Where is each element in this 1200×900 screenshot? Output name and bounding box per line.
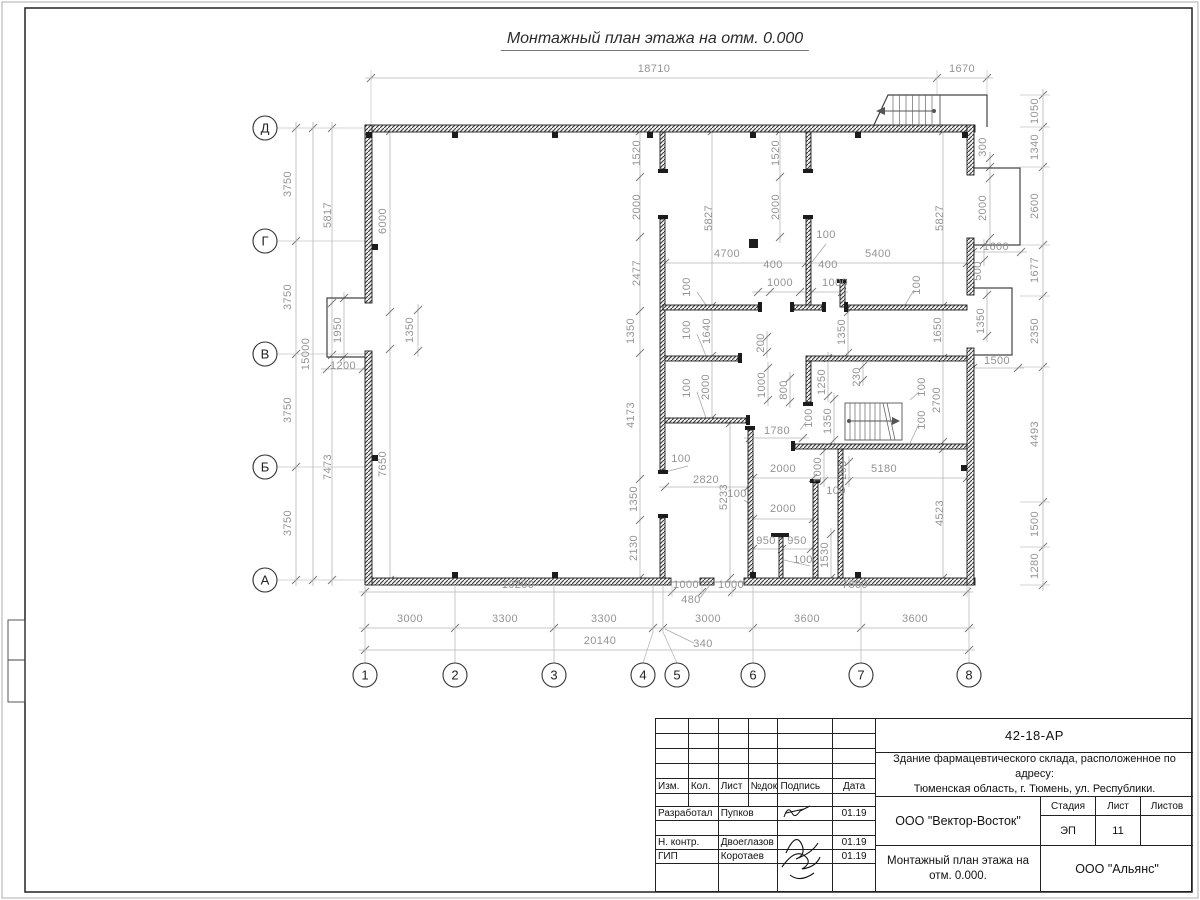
stage-value: ЭП: [1041, 816, 1096, 846]
dimension-label: 3600: [794, 613, 820, 625]
axis-leader: [643, 585, 653, 663]
leader-line: [697, 292, 706, 305]
axis-label: А: [261, 573, 270, 588]
axis-label: 4: [639, 668, 646, 683]
tb-empty-cell: [749, 749, 779, 763]
dimension-label: 2700: [931, 387, 943, 413]
sheet-number-label: Лист: [1096, 797, 1141, 816]
dimension-label: 1000: [756, 372, 768, 398]
stair-start-dot: [932, 109, 936, 113]
dimension-label: 3300: [492, 613, 518, 625]
dimension-label: 400: [818, 259, 838, 271]
object-name: Здание фармацевтического склада, располо…: [876, 753, 1193, 797]
plan-title: Монтажный план этажа на отм. 0.000: [501, 30, 809, 51]
dimension-label: 100: [681, 320, 693, 340]
dimension-label: 400: [763, 259, 783, 271]
dimension-label: 1280: [1029, 553, 1041, 579]
pilaster: [452, 132, 458, 138]
tb-header-podpis: Подпись: [778, 779, 833, 793]
dimension-label: 4700: [714, 248, 740, 260]
pilaster: [552, 132, 558, 138]
dimension-label: 1000: [718, 579, 744, 591]
dimension-label: 300: [977, 137, 989, 157]
dimension-label: 7473: [322, 454, 334, 480]
drawing-sheet: 1871016703750375037503750150005817747319…: [0, 0, 1200, 900]
stage-label: Стадия: [1041, 797, 1096, 816]
wall: [806, 132, 811, 169]
dimension-label: 2000: [770, 463, 796, 475]
dimension-label: 230: [851, 367, 863, 387]
wall-end-cap: [738, 353, 742, 363]
document-code: 42-18-АР: [876, 719, 1193, 753]
stair-arrow-icon: [876, 107, 885, 115]
dimension-label: 1340: [1029, 134, 1041, 160]
dimension-label: 1350: [628, 486, 640, 512]
dimension-label: 100: [671, 453, 691, 465]
dimension-label: 1250: [816, 369, 828, 395]
dimension-label: 3600: [902, 613, 928, 625]
tb-empty-cell: [778, 764, 833, 778]
stair-start-dot: [847, 419, 851, 423]
object-name-line1: Здание фармацевтического склада, располо…: [876, 752, 1193, 782]
leader-line: [665, 629, 694, 643]
wall: [365, 125, 975, 132]
tb-empty-cell: [833, 764, 875, 778]
dimension-label: 100: [816, 229, 836, 241]
dimension-label: 100: [727, 488, 747, 500]
wall-end-cap: [658, 514, 668, 518]
dimension-label: 2130: [628, 535, 640, 561]
dimension-label: 20140: [584, 635, 617, 647]
dimension-label: 340: [693, 638, 713, 650]
dimension-label: 2000: [977, 195, 989, 221]
tb-empty-cell: [778, 734, 833, 748]
dimension-label: 3000: [397, 613, 423, 625]
dimension-label: 1780: [764, 425, 790, 437]
dimension-label: 10200: [502, 579, 535, 591]
axis-label: 8: [965, 668, 972, 683]
dimension-label: 5827: [703, 205, 715, 231]
tb-empty-cell: [656, 734, 689, 748]
tb-empty-cell: [719, 719, 749, 733]
wall-end-cap: [803, 402, 813, 406]
dimension-label: 4493: [1029, 421, 1041, 447]
dimension-label: 1350: [822, 408, 834, 434]
pilaster: [372, 244, 378, 250]
stair-arrow-icon: [892, 417, 900, 425]
sheet-number-value: 11: [1096, 816, 1141, 846]
dimension-label: 100: [681, 378, 693, 398]
dimension-label: 1050: [1029, 98, 1041, 124]
tb-empty-cell: [833, 734, 875, 748]
dimension-label: 100: [826, 485, 846, 497]
dimension-label: 3300: [591, 613, 617, 625]
tb-empty-cell: [719, 821, 779, 835]
tb-empty-cell: [656, 764, 689, 778]
tb-empty-cell: [656, 719, 689, 733]
dimension-label: 7650: [377, 451, 389, 477]
tb-header-list: Лист: [719, 779, 749, 793]
tb-empty-cell: [749, 734, 779, 748]
signature-developer-icon: [784, 806, 810, 817]
axis-label: 3: [550, 668, 557, 683]
dimension-label: 100: [681, 277, 693, 297]
pilaster: [366, 132, 372, 138]
dimension-label: 4173: [625, 402, 637, 428]
dimension-label: 5827: [934, 205, 946, 231]
dimension-label: 200: [837, 460, 849, 480]
dimension-label: 3750: [282, 397, 294, 423]
drawing-name-line2: отм. 0.000.: [929, 869, 987, 884]
wall-end-cap: [803, 215, 813, 219]
tb-empty-cell: [749, 794, 779, 806]
pilaster: [750, 572, 756, 578]
wall: [795, 444, 967, 449]
tb-empty-cell: [656, 749, 689, 763]
tb-empty-cell: [778, 749, 833, 763]
object-name-line2: Тюменская область, г. Тюмень, ул. Респуб…: [914, 782, 1156, 797]
tb-empty-cell: [689, 794, 719, 806]
edge-stamp-box: [8, 620, 25, 660]
wall-end-cap: [658, 169, 668, 173]
dimension-label: 100: [916, 377, 928, 397]
edge-stamp-box: [8, 660, 25, 702]
tb-empty-cell: [656, 821, 719, 835]
pilaster: [452, 572, 458, 578]
dimension-label: 2000: [700, 374, 712, 400]
dimension-label: 2000: [631, 194, 643, 220]
dimension-label: 4523: [934, 500, 946, 526]
pilaster: [961, 465, 967, 471]
tb-empty-cell: [833, 719, 875, 733]
column: [749, 239, 758, 248]
dimension-label: 1650: [932, 317, 944, 343]
wall: [665, 418, 746, 423]
wall: [660, 219, 665, 470]
dimension-label: 100: [803, 408, 815, 428]
dimension-label: 1600: [983, 241, 1009, 253]
tb-empty-cell: [749, 719, 779, 733]
tb-empty-cell: [719, 764, 749, 778]
dimension-label: 6000: [377, 208, 389, 234]
wall: [665, 356, 738, 361]
dimension-label: 2600: [1029, 193, 1041, 219]
dimension-label: 15000: [300, 338, 312, 371]
wall: [660, 518, 665, 578]
dimension-label: 1000: [767, 277, 793, 289]
dimension-label: 2350: [1029, 318, 1041, 344]
tb-role-gip: ГИП: [656, 850, 719, 863]
wall-end-cap: [822, 302, 826, 312]
tb-header-izm: Изм.: [656, 779, 689, 793]
tb-header-kol: Кол.: [689, 779, 719, 793]
wall: [748, 430, 753, 578]
leader-line: [665, 466, 688, 472]
tb-empty-cell: [689, 719, 719, 733]
wall-end-cap: [758, 302, 762, 312]
developer-org: ООО "Вектор-Восток": [876, 797, 1041, 846]
dimension-label: 2000: [770, 503, 796, 515]
axis-label: 5: [673, 668, 680, 683]
dimension-label: 1950: [332, 317, 344, 343]
pilaster: [855, 572, 861, 578]
dimension-label: 5180: [871, 463, 897, 475]
dimension-label: 7800: [842, 579, 868, 591]
wall-end-cap: [844, 302, 848, 312]
pilaster: [552, 572, 558, 578]
axis-label: 6: [749, 668, 756, 683]
tb-empty-cell: [719, 734, 749, 748]
dimension-label: 1000: [673, 579, 699, 591]
axis-label: 2: [451, 668, 458, 683]
dimension-label: 3750: [282, 171, 294, 197]
dimension-label: 100: [793, 554, 813, 566]
dimension-label: 2820: [693, 474, 719, 486]
sheets-total-label: Листов: [1141, 797, 1193, 816]
wall: [365, 125, 372, 303]
axis-label: Г: [261, 234, 268, 249]
stair-break-line: [883, 403, 891, 440]
dimension-label: 5400: [865, 248, 891, 260]
customer-org: ООО "Альянс": [1041, 846, 1193, 891]
tb-empty-cell: [656, 794, 689, 806]
dimension-label: 1530: [819, 542, 831, 568]
pilaster: [962, 132, 968, 138]
wall-end-cap: [790, 302, 794, 312]
dimension-label: 1520: [631, 140, 643, 166]
tb-header-ndok: №док.: [749, 779, 779, 793]
dimension-label: 3750: [282, 284, 294, 310]
sheets-total-value: [1141, 816, 1193, 846]
dimension-label: 3750: [282, 510, 294, 536]
dimension-label: 1000: [812, 457, 824, 483]
wall-end-cap: [745, 426, 755, 430]
dimension-label: 1350: [836, 319, 848, 345]
tb-role-developer: Разработал: [656, 807, 719, 820]
dimension-label: 800: [778, 380, 790, 400]
wall-end-cap: [658, 215, 668, 219]
signatures-overlay: [776, 801, 896, 891]
dimension-label: 950: [756, 535, 776, 547]
tb-empty-cell: [833, 749, 875, 763]
axis-label: Д: [261, 121, 270, 136]
wall-end-cap: [791, 441, 795, 451]
tb-empty-cell: [689, 764, 719, 778]
signature-flourish-icon: [782, 840, 820, 879]
pilaster: [855, 132, 861, 138]
dimension-label: 200: [755, 333, 767, 353]
pilaster: [750, 132, 756, 138]
wall: [700, 578, 714, 585]
wall: [660, 132, 665, 169]
wall: [848, 305, 967, 310]
dimension-label: 1670: [949, 63, 975, 75]
dimension-label: 1677: [1029, 257, 1041, 283]
dimension-label: 1640: [701, 318, 713, 344]
wall: [779, 537, 783, 578]
wall: [967, 348, 974, 585]
wall: [806, 361, 811, 402]
tb-name-gip: Коротаев: [719, 850, 779, 863]
wall-end-cap: [658, 470, 668, 474]
dimension-label: 500: [972, 261, 984, 281]
tb-name-developer: Пупков: [719, 807, 779, 820]
axis-label: В: [261, 347, 270, 362]
title-block: Изм. Кол. Лист №док. Подпись Дата Разраб…: [655, 718, 1192, 892]
dimension-label: 1520: [770, 140, 782, 166]
dimension-label: 2000: [770, 194, 782, 220]
wall: [806, 219, 811, 307]
dimension-label: 950: [787, 535, 807, 547]
tb-header-data: Дата: [833, 779, 875, 793]
dimension-label: 1200: [330, 360, 356, 372]
tb-empty-cell: [719, 749, 749, 763]
dimension-label: 1500: [984, 355, 1010, 367]
dimension-label: 3000: [695, 613, 721, 625]
tb-empty-cell: [656, 864, 719, 892]
tb-role-ncontrol: Н. контр.: [656, 836, 719, 849]
dimension-label: 1350: [404, 317, 416, 343]
wall: [806, 356, 967, 361]
dimension-label: 5817: [322, 202, 334, 228]
wall: [967, 125, 974, 175]
wall-end-cap: [746, 415, 750, 425]
wall-end-cap: [803, 169, 813, 173]
drawing-name: Монтажный план этажа на отм. 0.000.: [876, 846, 1041, 891]
axis-leader: [663, 585, 677, 663]
tb-empty-cell: [719, 864, 779, 892]
tb-name-ncontrol: Двоеглазов: [719, 836, 779, 849]
tb-empty-cell: [689, 749, 719, 763]
wall: [365, 351, 372, 585]
dimension-label: 1000: [822, 277, 848, 289]
drawing-name-line1: Монтажный план этажа на: [887, 854, 1029, 869]
tb-empty-cell: [719, 794, 749, 806]
wall: [813, 483, 818, 578]
tb-empty-cell: [689, 734, 719, 748]
dimension-label: 480: [681, 594, 701, 606]
dimension-label: 1500: [1029, 511, 1041, 537]
dimension-label: 100: [916, 410, 928, 430]
tb-empty-cell: [778, 719, 833, 733]
wall: [663, 305, 758, 310]
dimension-label: 2477: [631, 260, 643, 286]
pilaster: [647, 132, 653, 138]
axis-label: 7: [857, 668, 864, 683]
dimension-label: 1350: [975, 308, 987, 334]
axis-label: 1: [361, 668, 368, 683]
dimension-label: 100: [911, 275, 923, 295]
dimension-label: 1350: [625, 318, 637, 344]
wall: [794, 305, 822, 310]
axis-label: Б: [261, 460, 270, 475]
dimension-label: 18710: [638, 63, 671, 75]
tb-empty-cell: [749, 764, 779, 778]
